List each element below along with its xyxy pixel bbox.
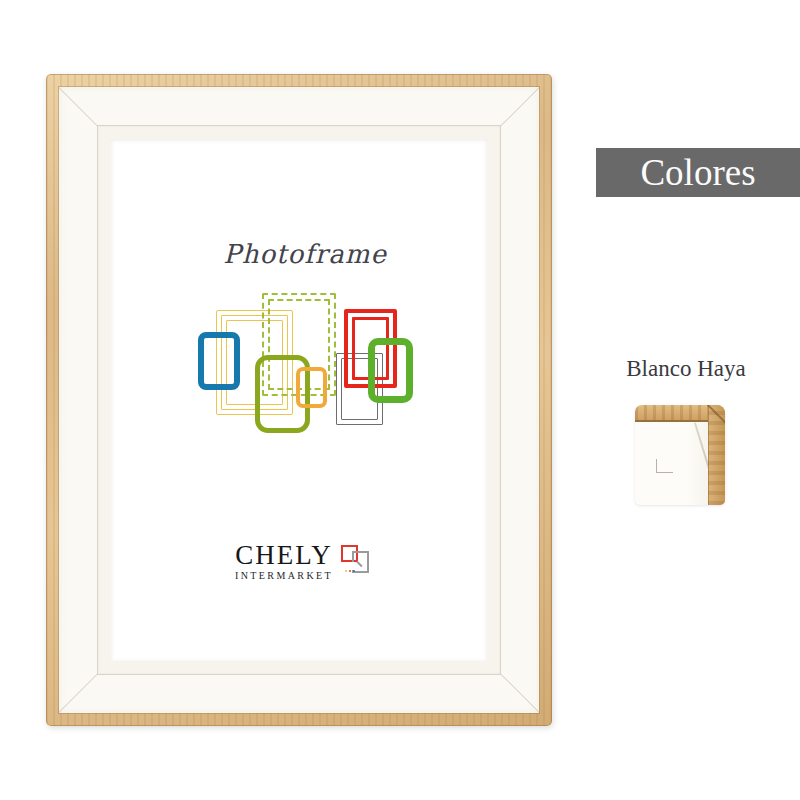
product-listing-image: Photoframe CHELY INTERMARKET Colores Bla… (0, 0, 800, 800)
colores-banner-label: Colores (640, 154, 755, 191)
photoframe-script-title: Photoframe (111, 239, 487, 269)
color-swatch-label: Blanco Haya (586, 356, 786, 382)
frame-corner-sample (635, 405, 725, 505)
photo-frame: Photoframe CHELY INTERMARKET (46, 74, 552, 726)
sample-inner-lip-corner (656, 459, 673, 473)
miter-line-bottom-left (58, 673, 98, 713)
colores-banner: Colores (596, 148, 800, 197)
miter-line-top-right (499, 87, 539, 127)
brand-logo: CHELY INTERMARKET (111, 544, 487, 581)
colored-frames-artwork (197, 293, 413, 441)
green-bright-frame (368, 338, 413, 403)
logo-dot (345, 570, 347, 572)
frame-insert-print: Photoframe CHELY INTERMARKET (111, 139, 487, 661)
logo-dot (353, 570, 355, 572)
brand-name: CHELY (235, 544, 333, 566)
brand-logo-mark-icon (341, 544, 375, 576)
orange-frame (296, 367, 327, 408)
logo-dot (349, 570, 351, 572)
brand-logo-text: CHELY INTERMARKET (235, 544, 333, 581)
miter-line-top-left (58, 87, 98, 127)
logo-color-dots (345, 570, 355, 572)
miter-line-bottom-right (499, 673, 539, 713)
brand-subtitle: INTERMARKET (235, 570, 333, 581)
blue-frame (198, 332, 240, 390)
